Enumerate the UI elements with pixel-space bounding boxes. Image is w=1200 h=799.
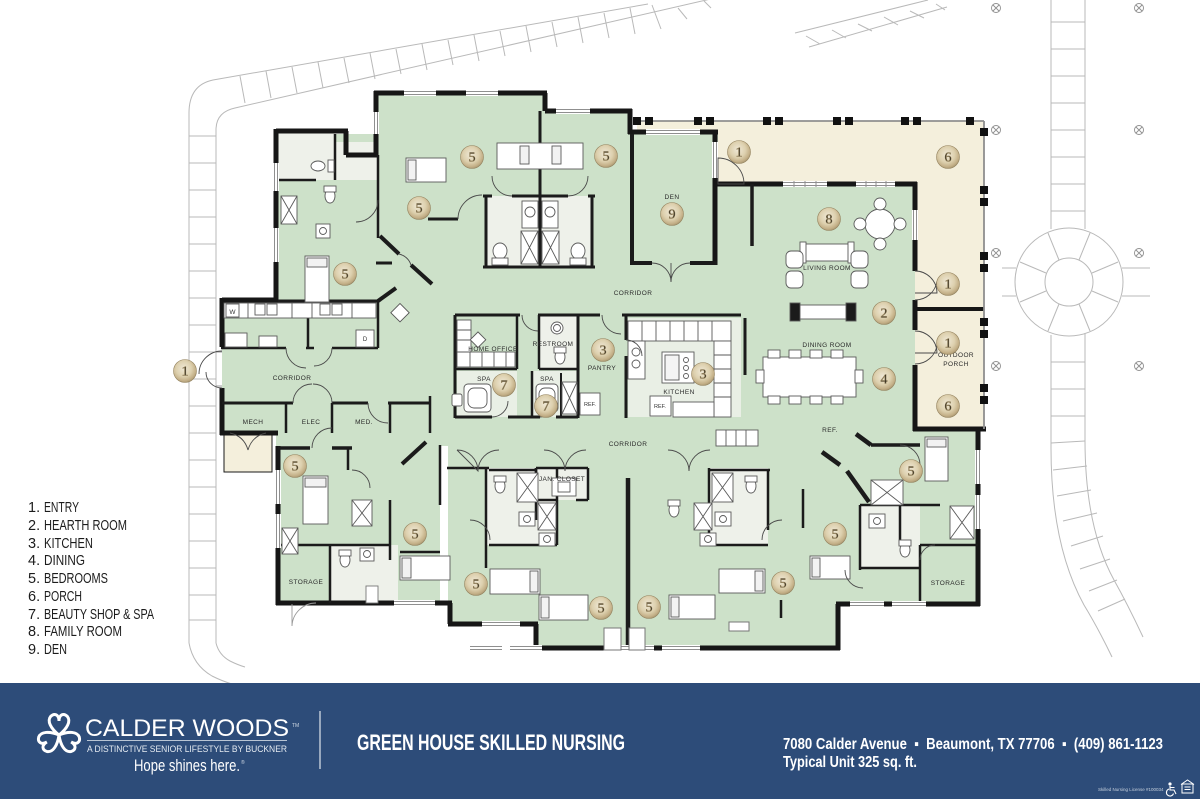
svg-text:7.: 7. xyxy=(28,607,40,623)
svg-text:PANTRY: PANTRY xyxy=(588,365,616,372)
svg-text:5: 5 xyxy=(646,601,653,616)
svg-text:5: 5 xyxy=(342,268,349,283)
svg-text:D: D xyxy=(363,337,368,343)
svg-text:1: 1 xyxy=(945,278,952,293)
svg-text:9: 9 xyxy=(669,208,676,223)
svg-text:5: 5 xyxy=(780,577,787,592)
svg-text:DINING: DINING xyxy=(44,553,85,569)
svg-text:CORRIDOR: CORRIDOR xyxy=(273,375,312,382)
svg-text:6: 6 xyxy=(945,400,952,415)
svg-text:1: 1 xyxy=(945,337,952,352)
svg-text:CALDER WOODS: CALDER WOODS xyxy=(85,715,289,742)
svg-text:5: 5 xyxy=(832,528,839,543)
svg-text:5: 5 xyxy=(908,465,915,480)
svg-text:6.: 6. xyxy=(28,589,40,605)
svg-text:5: 5 xyxy=(469,151,476,166)
svg-text:6: 6 xyxy=(945,151,952,166)
svg-text:5: 5 xyxy=(598,602,605,617)
svg-text:LIVING ROOM: LIVING ROOM xyxy=(803,265,851,272)
svg-text:4.: 4. xyxy=(28,553,40,569)
svg-text:ENTRY: ENTRY xyxy=(44,500,79,516)
svg-text:2.: 2. xyxy=(28,518,40,534)
svg-text:DEN: DEN xyxy=(44,642,67,658)
svg-text:SPA: SPA xyxy=(540,376,554,383)
svg-text:8: 8 xyxy=(826,213,833,228)
svg-text:4: 4 xyxy=(881,373,888,388)
svg-text:SPA: SPA xyxy=(477,376,491,383)
svg-text:GREEN HOUSE SKILLED NURSING: GREEN HOUSE SKILLED NURSING xyxy=(357,730,625,755)
svg-text:9.: 9. xyxy=(28,642,40,658)
svg-text:Hope shines here.: Hope shines here. xyxy=(134,757,240,775)
svg-text:7: 7 xyxy=(501,379,508,394)
svg-text:MED.: MED. xyxy=(355,419,373,426)
svg-text:5: 5 xyxy=(292,460,299,475)
svg-text:7: 7 xyxy=(543,400,550,415)
svg-text:1: 1 xyxy=(736,146,743,161)
svg-text:REF.: REF. xyxy=(822,427,838,434)
svg-text:STORAGE: STORAGE xyxy=(931,580,966,587)
svg-text:JAN. CLOSET: JAN. CLOSET xyxy=(539,476,585,483)
svg-text:W: W xyxy=(229,309,236,316)
svg-text:5: 5 xyxy=(473,578,480,593)
svg-text:1.: 1. xyxy=(28,500,40,516)
svg-text:5: 5 xyxy=(412,528,419,543)
svg-text:Skilled Nursing License #10003: Skilled Nursing License #100034 xyxy=(1098,787,1164,792)
svg-text:CORRIDOR: CORRIDOR xyxy=(609,441,648,448)
svg-text:RESTROOM: RESTROOM xyxy=(533,341,574,348)
svg-text:ELEC: ELEC xyxy=(302,419,321,426)
svg-text:PORCH: PORCH xyxy=(44,589,82,605)
svg-text:PORCH: PORCH xyxy=(943,361,968,368)
svg-text:3: 3 xyxy=(700,368,707,383)
svg-text:HEARTH ROOM: HEARTH ROOM xyxy=(44,518,127,534)
svg-text:CORRIDOR: CORRIDOR xyxy=(614,290,653,297)
svg-text:DINING ROOM: DINING ROOM xyxy=(802,342,851,349)
svg-text:STORAGE: STORAGE xyxy=(289,579,324,586)
svg-text:7080 Calder Avenue ▪ Beaumon: 7080 Calder Avenue ▪ Beaumont, TX 77706 … xyxy=(783,736,1163,753)
svg-text:5: 5 xyxy=(603,150,610,165)
svg-text:DEN: DEN xyxy=(665,194,680,201)
svg-text:REF.: REF. xyxy=(654,404,666,410)
svg-text:5.: 5. xyxy=(28,571,40,587)
svg-text:MECH: MECH xyxy=(243,419,264,426)
svg-text:5: 5 xyxy=(416,202,423,217)
svg-text:Typical Unit 325 sq. ft.: Typical Unit 325 sq. ft. xyxy=(783,754,917,771)
svg-text:KITCHEN: KITCHEN xyxy=(44,536,93,552)
svg-text:HOME OFFICE: HOME OFFICE xyxy=(468,346,518,353)
svg-text:2: 2 xyxy=(881,307,888,322)
svg-text:BEAUTY SHOP & SPA: BEAUTY SHOP & SPA xyxy=(44,607,154,623)
svg-text:8.: 8. xyxy=(28,624,40,640)
svg-text:REF.: REF. xyxy=(584,402,596,408)
svg-text:®: ® xyxy=(241,759,245,766)
svg-text:TM: TM xyxy=(292,723,299,729)
svg-text:BEDROOMS: BEDROOMS xyxy=(44,571,108,587)
svg-text:KITCHEN: KITCHEN xyxy=(663,389,694,396)
svg-text:1: 1 xyxy=(182,365,189,380)
svg-text:FAMILY ROOM: FAMILY ROOM xyxy=(44,624,122,640)
svg-text:3: 3 xyxy=(600,344,607,359)
svg-text:A DISTINCTIVE SENIOR LIFESTYLE: A DISTINCTIVE SENIOR LIFESTYLE BY BUCKNE… xyxy=(87,744,287,754)
svg-text:3.: 3. xyxy=(28,536,40,552)
